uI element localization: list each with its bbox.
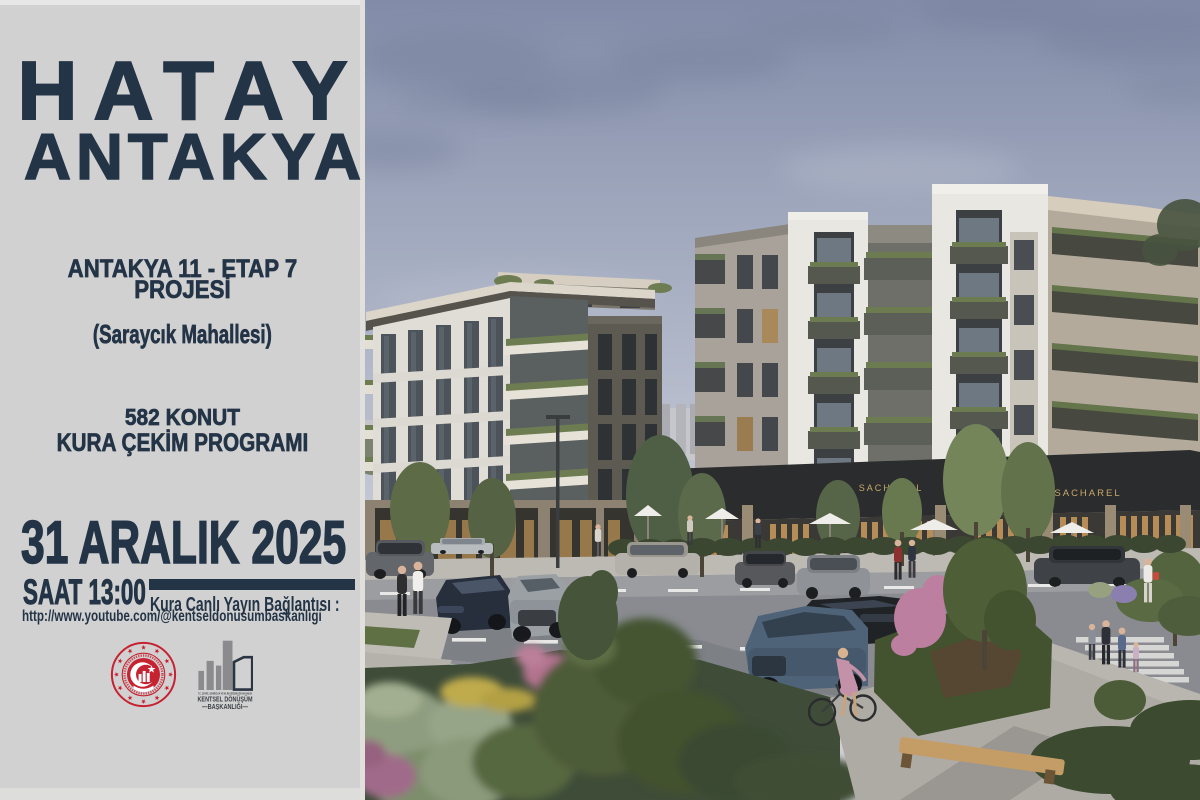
svg-text:―BAŞKANLIĞI―: ―BAŞKANLIĞI― bbox=[202, 702, 248, 710]
svg-text:KENTSEL DÖNÜŞÜM: KENTSEL DÖNÜŞÜM bbox=[198, 695, 253, 704]
svg-text:T.C. ÇEVRE, ŞEHİRCİLİK VE İKLİ: T.C. ÇEVRE, ŞEHİRCİLİK VE İKLİM DEĞİŞİKL… bbox=[198, 691, 252, 696]
svg-text:SACHAREL: SACHAREL bbox=[1054, 488, 1121, 499]
